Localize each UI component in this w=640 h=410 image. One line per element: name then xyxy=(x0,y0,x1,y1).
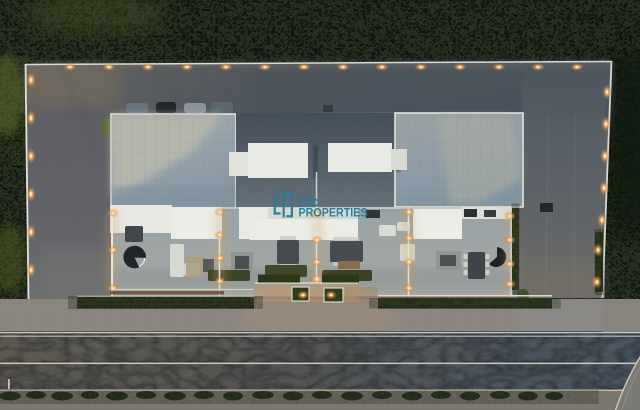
svg-text:PROPERTIES: PROPERTIES xyxy=(299,206,368,220)
